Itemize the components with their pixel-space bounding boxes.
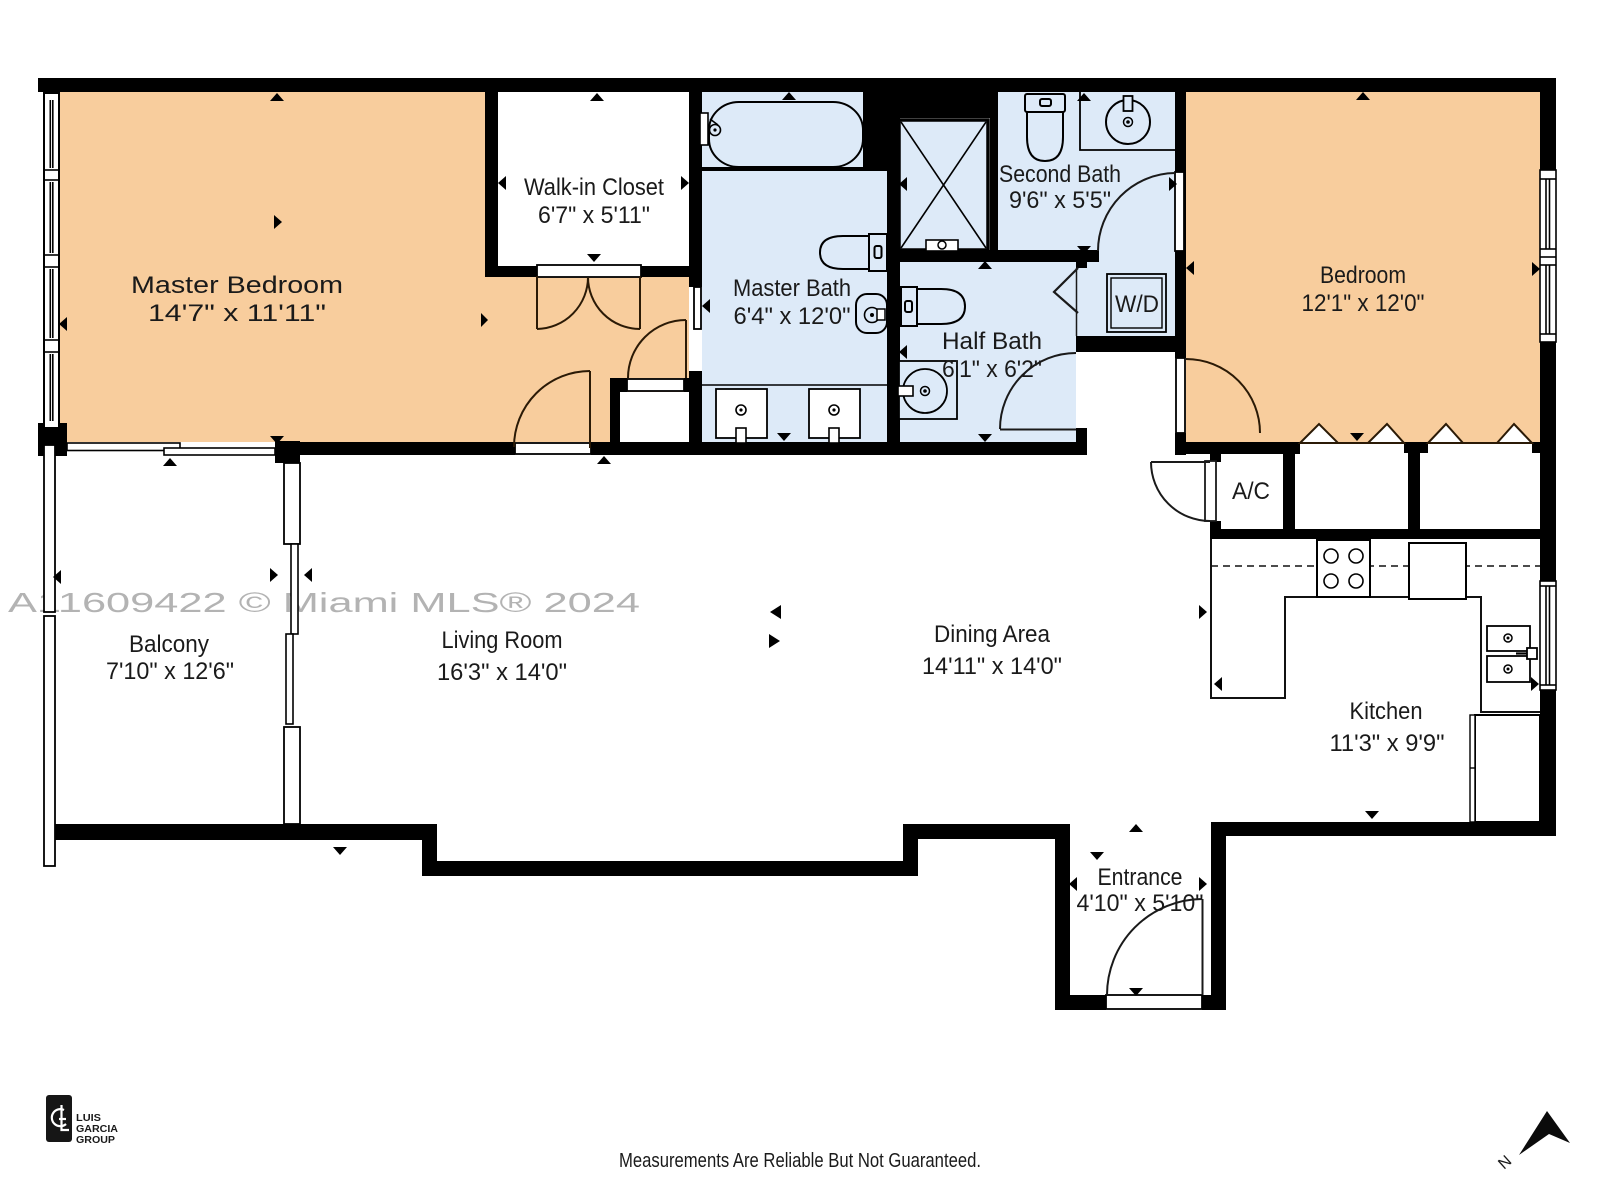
svg-text:9'6" x 5'5": 9'6" x 5'5" bbox=[1009, 187, 1111, 214]
svg-text:Kitchen: Kitchen bbox=[1350, 698, 1423, 725]
svg-text:Bedroom: Bedroom bbox=[1320, 262, 1406, 289]
svg-text:Living Room: Living Room bbox=[442, 627, 563, 654]
svg-text:Dining Area: Dining Area bbox=[934, 621, 1051, 648]
svg-text:A/C: A/C bbox=[1232, 478, 1270, 505]
svg-text:6'1" x 6'2": 6'1" x 6'2" bbox=[942, 356, 1042, 383]
svg-text:Balcony: Balcony bbox=[129, 631, 209, 658]
svg-text:W/D: W/D bbox=[1115, 291, 1159, 318]
svg-text:Half Bath: Half Bath bbox=[942, 328, 1042, 355]
svg-text:GARCIA: GARCIA bbox=[76, 1124, 118, 1135]
svg-text:6'7" x 5'11": 6'7" x 5'11" bbox=[538, 202, 650, 229]
svg-text:Second Bath: Second Bath bbox=[999, 161, 1121, 188]
svg-text:Master Bedroom: Master Bedroom bbox=[131, 272, 343, 299]
svg-text:12'1" x 12'0": 12'1" x 12'0" bbox=[1302, 290, 1425, 317]
svg-text:14'7" x 11'11": 14'7" x 11'11" bbox=[148, 300, 326, 327]
svg-text:GROUP: GROUP bbox=[76, 1135, 115, 1146]
svg-text:A11609422 © Miami MLS® 2024: A11609422 © Miami MLS® 2024 bbox=[8, 587, 640, 618]
svg-text:Measurements Are Reliable But: Measurements Are Reliable But Not Guaran… bbox=[619, 1150, 981, 1172]
svg-text:LUIS: LUIS bbox=[76, 1113, 101, 1124]
svg-text:14'11" x 14'0": 14'11" x 14'0" bbox=[922, 653, 1062, 680]
svg-text:Master Bath: Master Bath bbox=[733, 275, 851, 302]
svg-text:Walk-in Closet: Walk-in Closet bbox=[524, 174, 664, 201]
svg-text:7'10" x 12'6": 7'10" x 12'6" bbox=[106, 658, 234, 685]
svg-text:16'3" x 14'0": 16'3" x 14'0" bbox=[437, 659, 567, 686]
svg-text:Entrance: Entrance bbox=[1098, 864, 1183, 891]
svg-text:6'4" x 12'0": 6'4" x 12'0" bbox=[734, 303, 851, 330]
svg-text:4'10" x 5'10": 4'10" x 5'10" bbox=[1077, 890, 1204, 917]
svg-text:11'3" x 9'9": 11'3" x 9'9" bbox=[1330, 730, 1445, 757]
